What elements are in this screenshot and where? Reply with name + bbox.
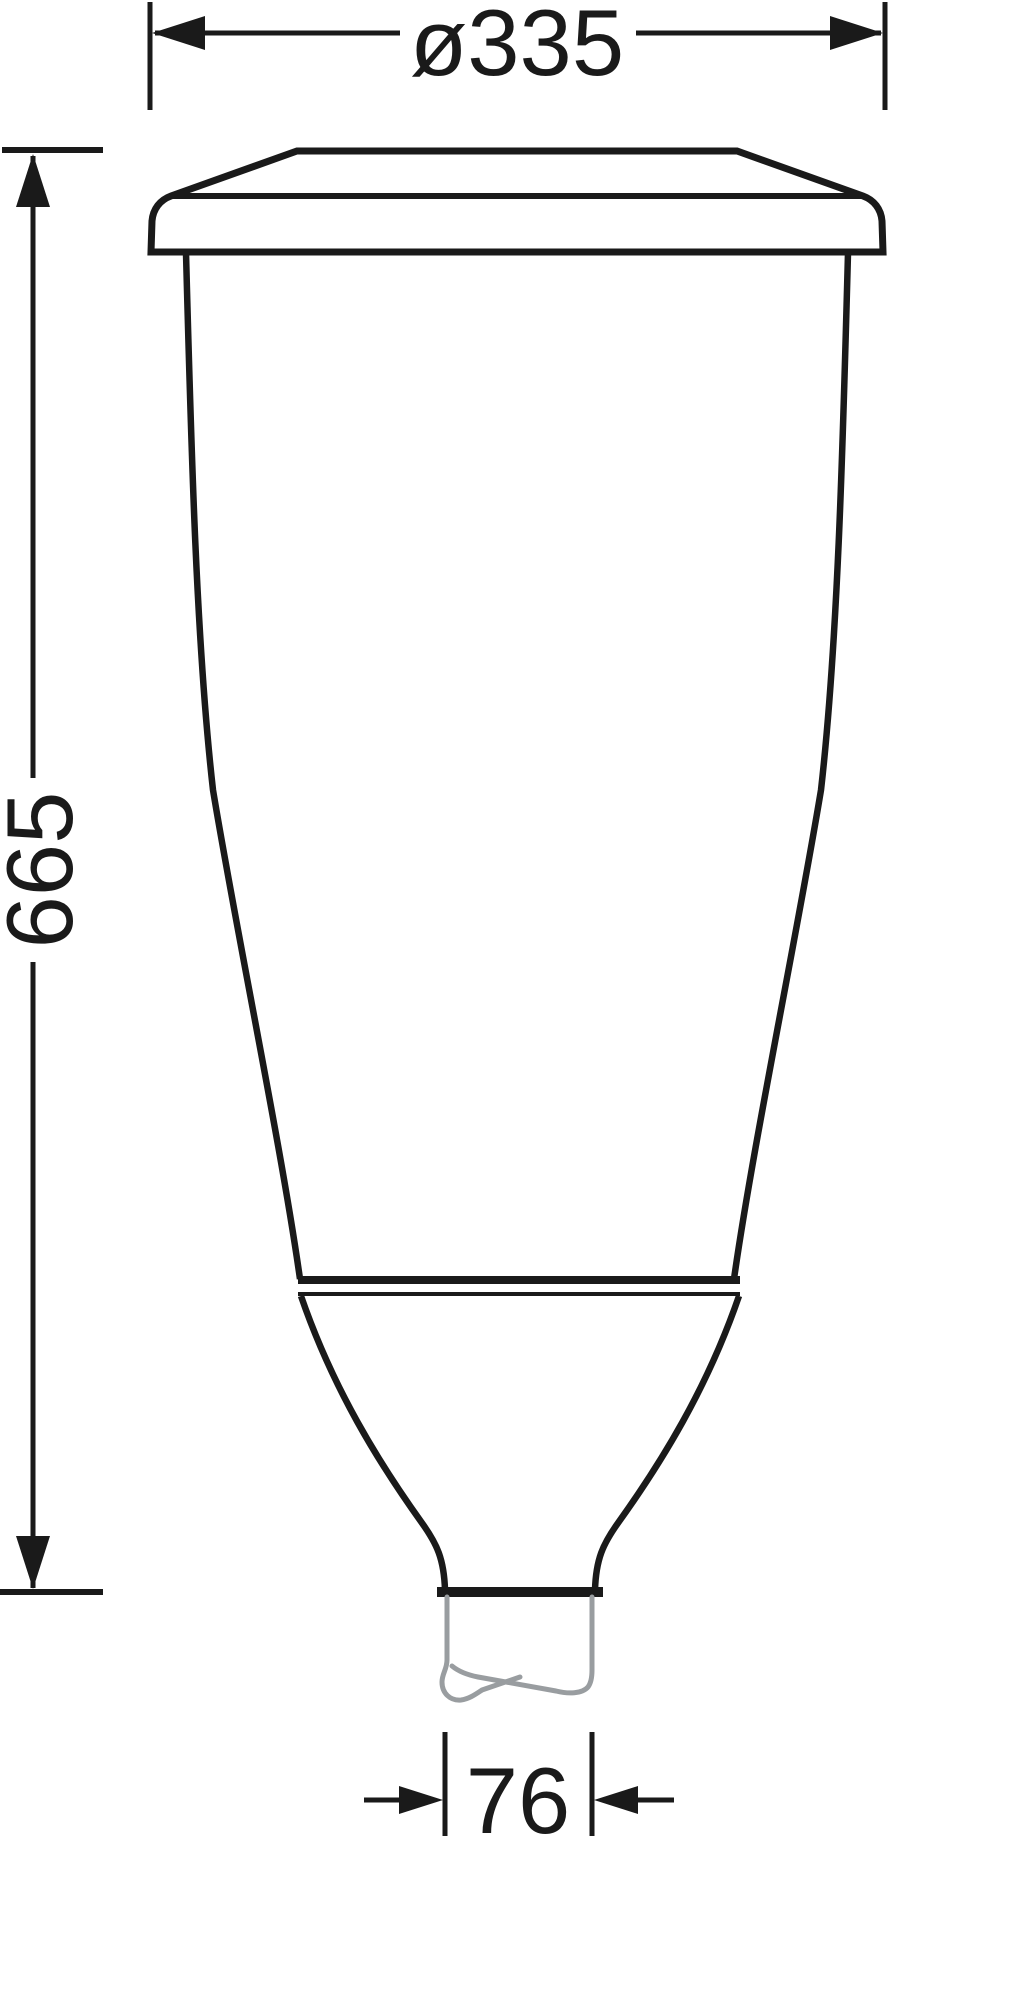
arrowhead-inward-right-icon bbox=[594, 1786, 638, 1814]
arrowhead-up-icon bbox=[16, 154, 50, 207]
pole-spigot bbox=[442, 1597, 592, 1700]
cone-right-edge bbox=[595, 1296, 739, 1590]
luminaire-dimension-drawing: ø335 665 76 bbox=[0, 0, 1009, 2000]
arrowhead-left-icon bbox=[152, 16, 205, 50]
diameter-dimension: ø335 bbox=[150, 0, 885, 110]
technical-drawing-page: ø335 665 76 bbox=[0, 0, 1009, 2000]
arrowhead-inward-left-icon bbox=[399, 1786, 443, 1814]
body-left-edge bbox=[186, 253, 300, 1279]
spigot-label: 76 bbox=[466, 1748, 571, 1853]
body-right-edge bbox=[734, 253, 848, 1279]
cone-left-edge bbox=[301, 1296, 445, 1590]
luminaire-drawing bbox=[151, 151, 883, 1700]
height-dimension: 665 bbox=[0, 150, 103, 1592]
cap-outline bbox=[151, 151, 883, 252]
pole-break-right bbox=[452, 1597, 592, 1693]
spigot-dimension: 76 bbox=[364, 1732, 674, 1853]
arrowhead-down-icon bbox=[16, 1536, 50, 1589]
diameter-label: ø335 bbox=[410, 0, 624, 95]
arrowhead-right-icon bbox=[830, 16, 883, 50]
height-label: 665 bbox=[0, 792, 92, 949]
